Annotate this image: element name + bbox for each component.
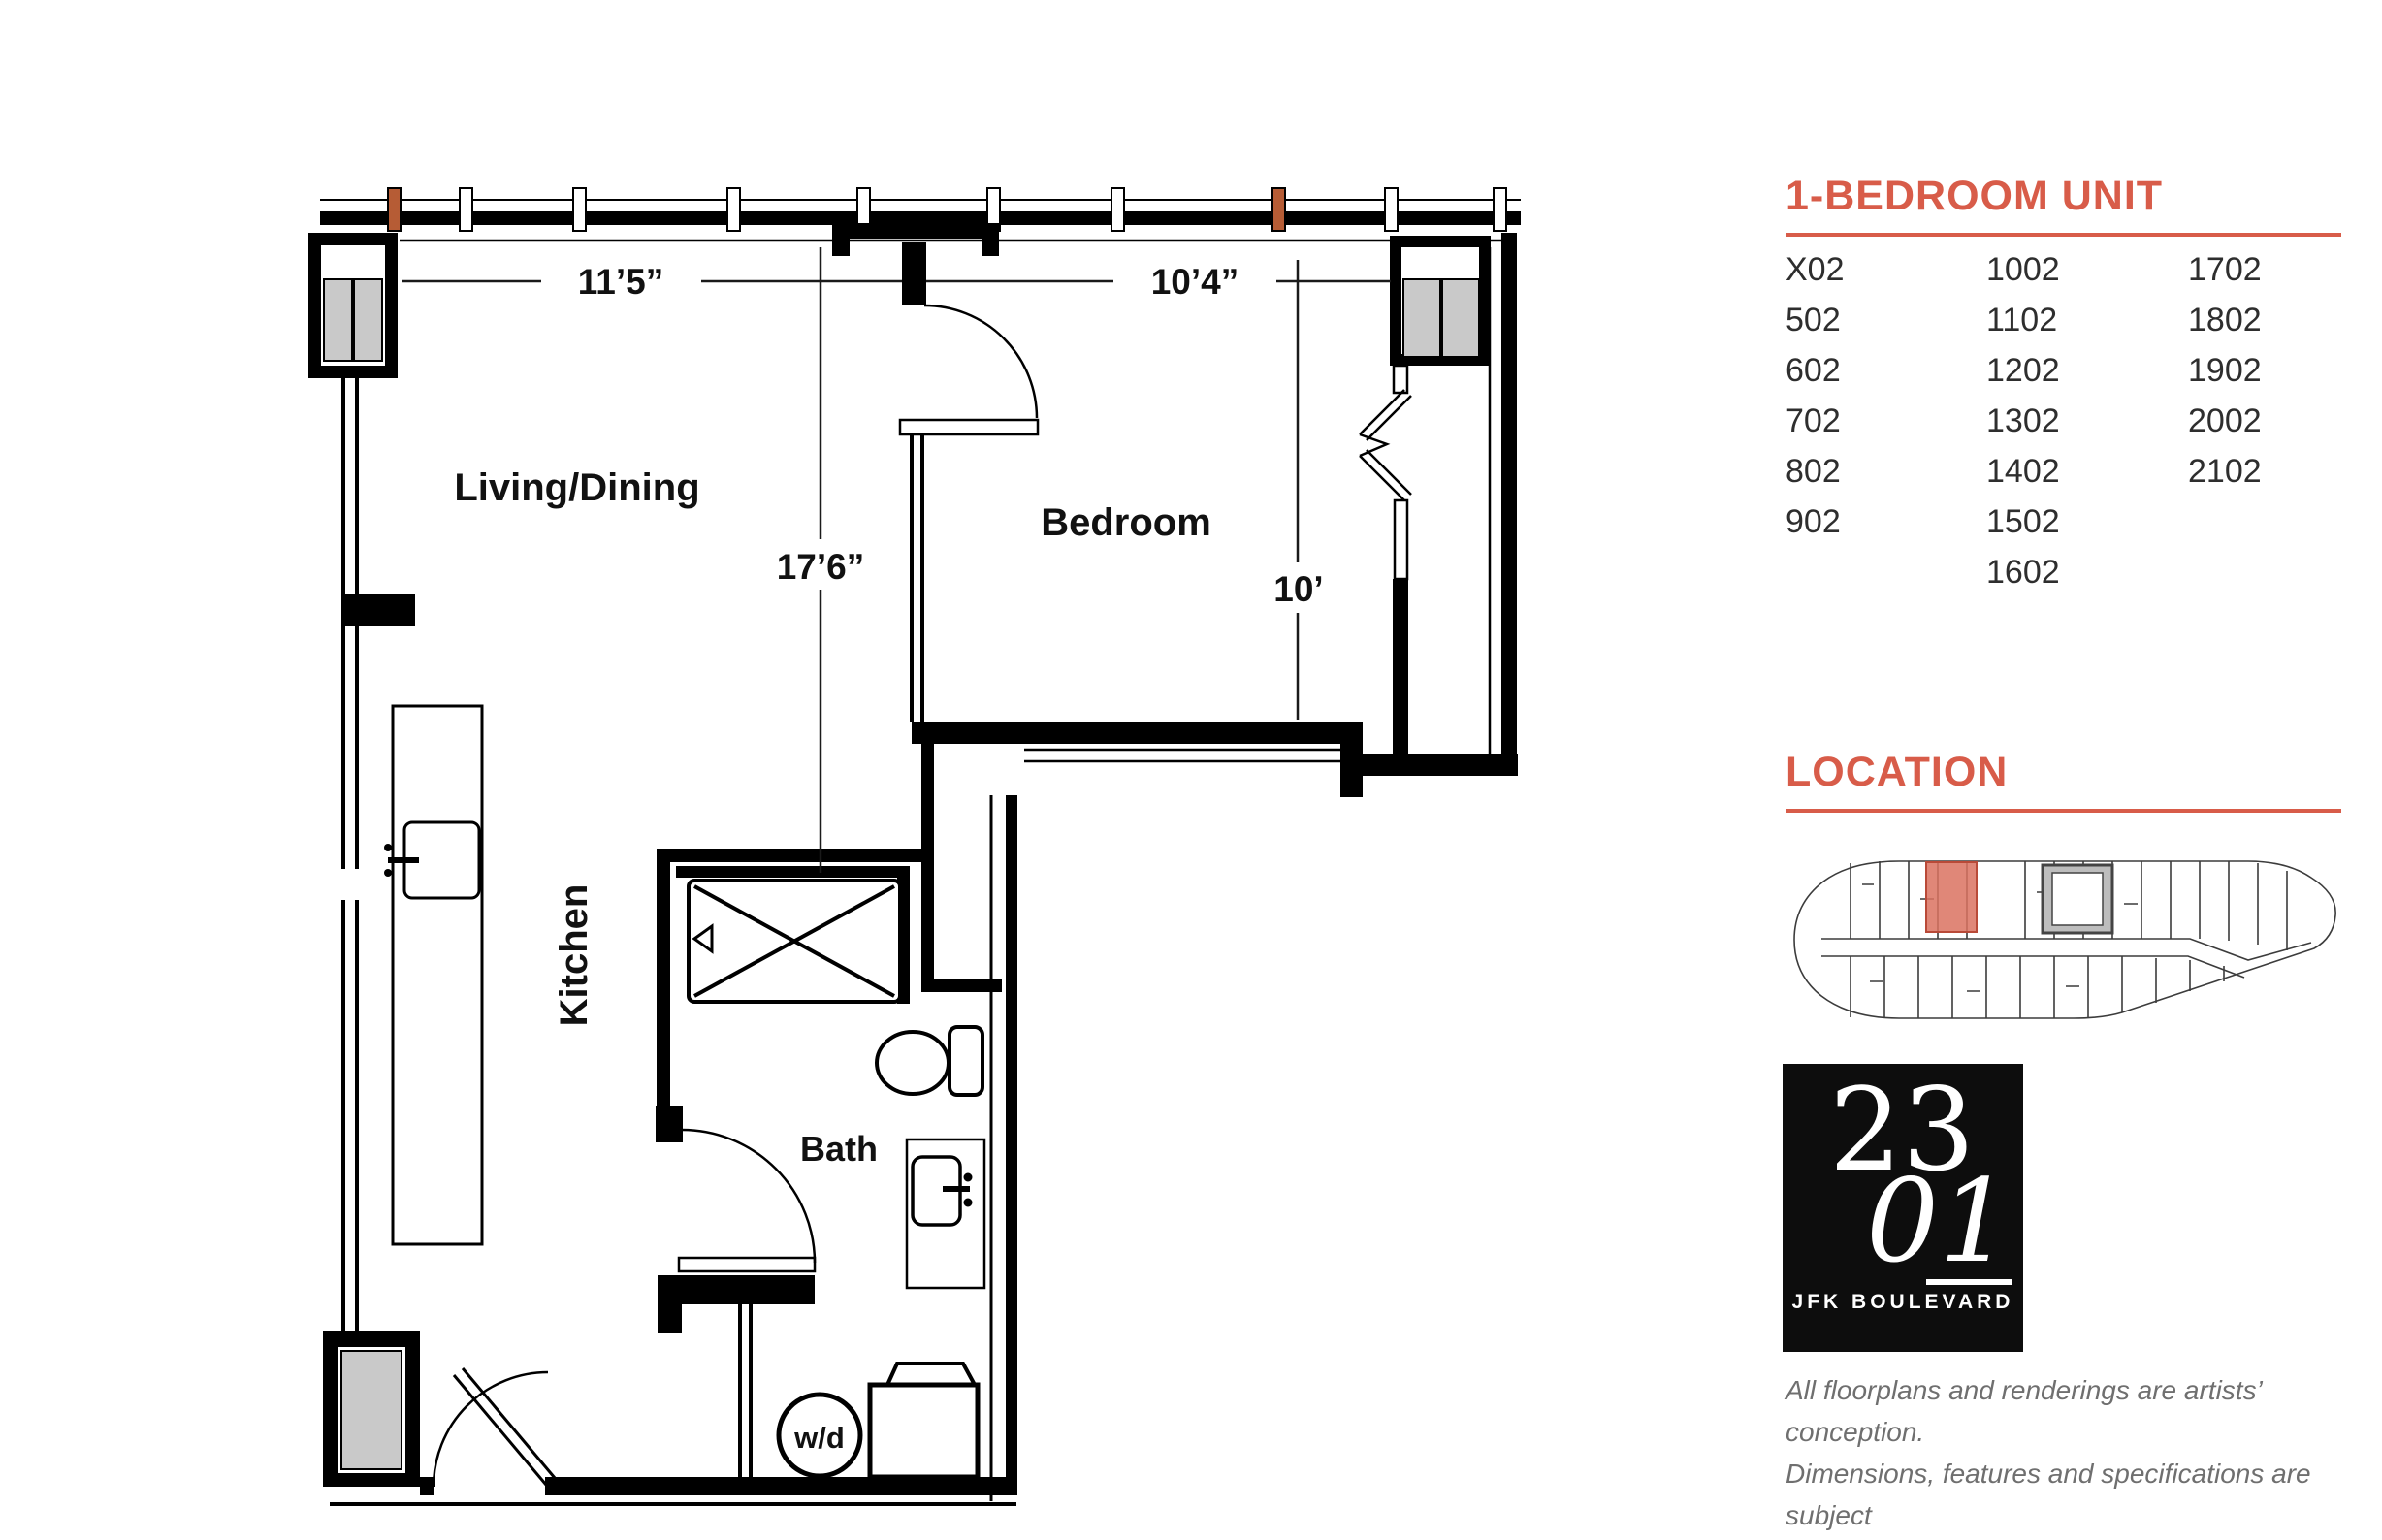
disclaimer-line: to change at the discretion of the build…: [1786, 1536, 2348, 1540]
location-heading-rule: [1786, 809, 2341, 813]
kitchen-counter: [341, 594, 482, 1244]
unit-list-column-3: 1702 1802 1902 2002 2102: [2188, 244, 2262, 497]
unit-number: 2102: [2188, 446, 2262, 497]
room-label-living-dining: Living/Dining: [454, 466, 699, 509]
disclaimer-line: Dimensions, features and specifications …: [1786, 1453, 2348, 1536]
logo-numeral-01: 01: [1866, 1172, 2012, 1269]
dimension-bedroom-depth: 10’: [1273, 569, 1323, 609]
unit-number: 602: [1786, 345, 1845, 396]
dimension-living-length: 17’6”: [777, 547, 865, 587]
bath-door: [682, 1130, 815, 1263]
room-label-washer-dryer: w/d: [793, 1421, 845, 1455]
unit-number: 702: [1786, 396, 1845, 446]
unit-list-column-2: 1002 1102 1202 1302 1402 1502 1602: [1986, 244, 2060, 597]
unit-number: 1302: [1986, 396, 2060, 446]
disclaimer-line: All floorplans and renderings are artist…: [1786, 1369, 2348, 1453]
bedroom-door-nook: [832, 223, 1038, 434]
building-logo: 23 01 JFK BOULEVARD: [1783, 1064, 2023, 1352]
unit-number: 1502: [1986, 497, 2060, 547]
floorplan-page: 11’5” 10’4” 17’6” 10’ Living/Dining Bedr…: [0, 0, 2382, 1540]
unit-floorplan-drawing: 11’5” 10’4” 17’6” 10’ Living/Dining Bedr…: [0, 0, 1707, 1540]
unit-type-heading: 1-BEDROOM UNIT: [1786, 173, 2163, 220]
unit-number: 802: [1786, 446, 1845, 497]
unit-number: 902: [1786, 497, 1845, 547]
column-bottom-left: [323, 1331, 420, 1487]
highlighted-unit: [1926, 862, 1977, 932]
unit-number: 1102: [1986, 295, 2060, 345]
unit-list-column-1: X02 502 602 702 802 902: [1786, 244, 1845, 547]
entry-door: [434, 1368, 555, 1487]
room-label-bath: Bath: [800, 1129, 878, 1169]
logo-underline: [1926, 1279, 2012, 1285]
dimension-living-width: 11’5”: [578, 262, 663, 302]
dimension-lines: [402, 247, 1391, 873]
disclaimer-text: All floorplans and renderings are artist…: [1786, 1369, 2348, 1540]
room-label-bedroom: Bedroom: [1041, 501, 1211, 544]
unit-number: X02: [1786, 244, 1845, 295]
unit-number: 1702: [2188, 244, 2262, 295]
location-key-plan: [1783, 846, 2345, 1035]
unit-number: 1402: [1986, 446, 2060, 497]
left-exterior-wall: [343, 378, 357, 1331]
unit-number: 1902: [2188, 345, 2262, 396]
column-top-left: [308, 233, 398, 378]
logo-subtitle: JFK BOULEVARD: [1783, 1291, 2023, 1314]
room-label-kitchen: Kitchen: [553, 884, 595, 1027]
bath-sink: [907, 1139, 984, 1288]
unit-number: 1002: [1986, 244, 2060, 295]
shower: [689, 881, 900, 1002]
top-window-wall: [320, 211, 1521, 225]
location-heading: LOCATION: [1786, 749, 2008, 796]
unit-number: 1602: [1986, 547, 2060, 597]
unit-number: 502: [1786, 295, 1845, 345]
dimension-bedroom-width: 10’4”: [1151, 262, 1239, 302]
unit-heading-rule: [1786, 233, 2341, 237]
column-top-right: [1390, 236, 1491, 366]
unit-number: 1802: [2188, 295, 2262, 345]
unit-number: 2002: [2188, 396, 2262, 446]
toilet: [877, 1027, 982, 1095]
unit-number: 1202: [1986, 345, 2060, 396]
core-block-inner: [2052, 873, 2103, 925]
closet-bifold-door: [1360, 366, 1411, 579]
living-bedroom-divider-wall: [912, 434, 922, 722]
